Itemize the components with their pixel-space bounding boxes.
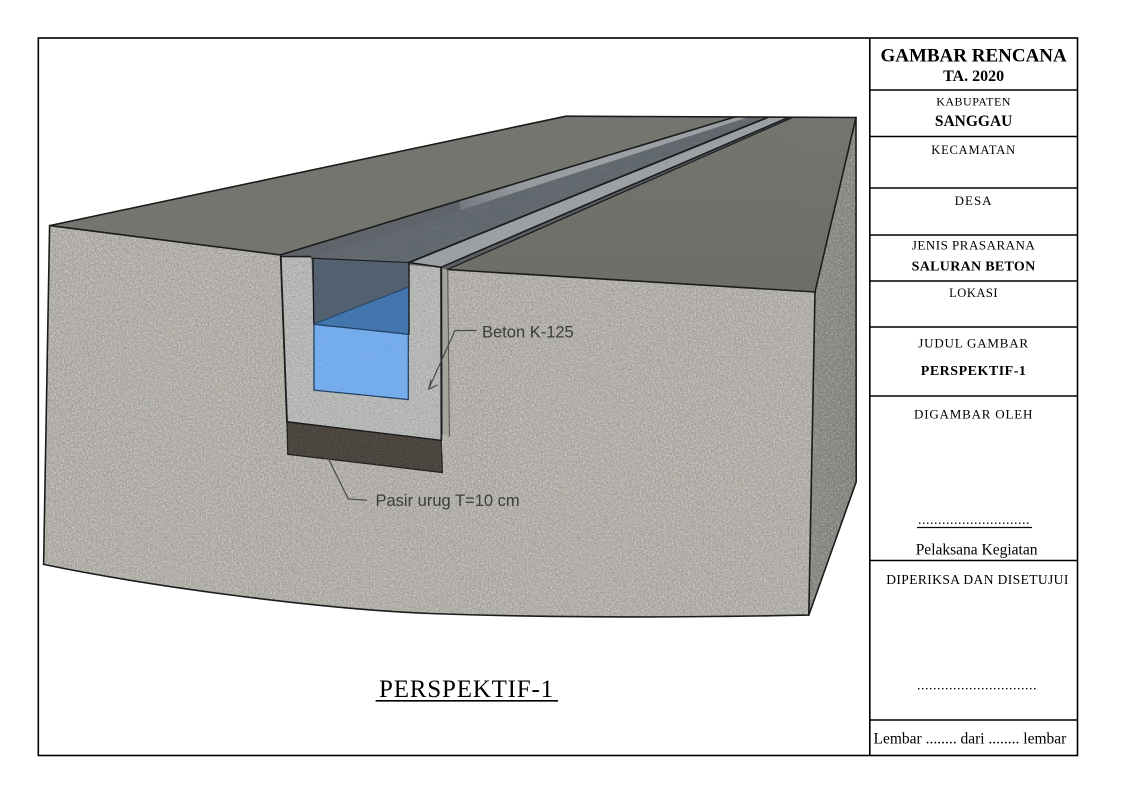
svg-text:Beton K-125: Beton K-125 — [482, 324, 574, 342]
svg-text:JUDUL GAMBAR: JUDUL GAMBAR — [918, 336, 1029, 351]
svg-text:SANGGAU: SANGGAU — [935, 113, 1013, 130]
svg-text:GAMBAR RENCANA: GAMBAR RENCANA — [880, 46, 1067, 67]
svg-text:DIPERIKSA DAN DISETUJUI: DIPERIKSA DAN DISETUJUI — [886, 572, 1069, 587]
svg-text:Lembar ........ dari ........: Lembar ........ dari ........ lembar — [874, 731, 1068, 748]
svg-text:KABUPATEN: KABUPATEN — [936, 95, 1011, 109]
svg-text:JENIS PRASARANA: JENIS PRASARANA — [912, 238, 1036, 253]
svg-text:..............................: .............................. — [917, 679, 1037, 694]
svg-text:LOKASI: LOKASI — [949, 286, 998, 300]
svg-text:PERSPEKTIF-1: PERSPEKTIF-1 — [921, 364, 1027, 379]
svg-text:KECAMATAN: KECAMATAN — [931, 143, 1016, 157]
svg-text:SALURAN BETON: SALURAN BETON — [912, 260, 1036, 275]
svg-text:............................: ............................ — [918, 513, 1030, 528]
svg-text:TA. 2020: TA. 2020 — [943, 68, 1004, 85]
svg-text:Pasir urug T=10 cm: Pasir urug T=10 cm — [376, 492, 520, 510]
svg-text:DESA: DESA — [955, 193, 993, 208]
svg-text:Pelaksana Kegiatan: Pelaksana Kegiatan — [916, 542, 1038, 559]
svg-text:PERSPEKTIF-1: PERSPEKTIF-1 — [379, 676, 554, 703]
svg-text:DIGAMBAR OLEH: DIGAMBAR OLEH — [914, 407, 1033, 422]
